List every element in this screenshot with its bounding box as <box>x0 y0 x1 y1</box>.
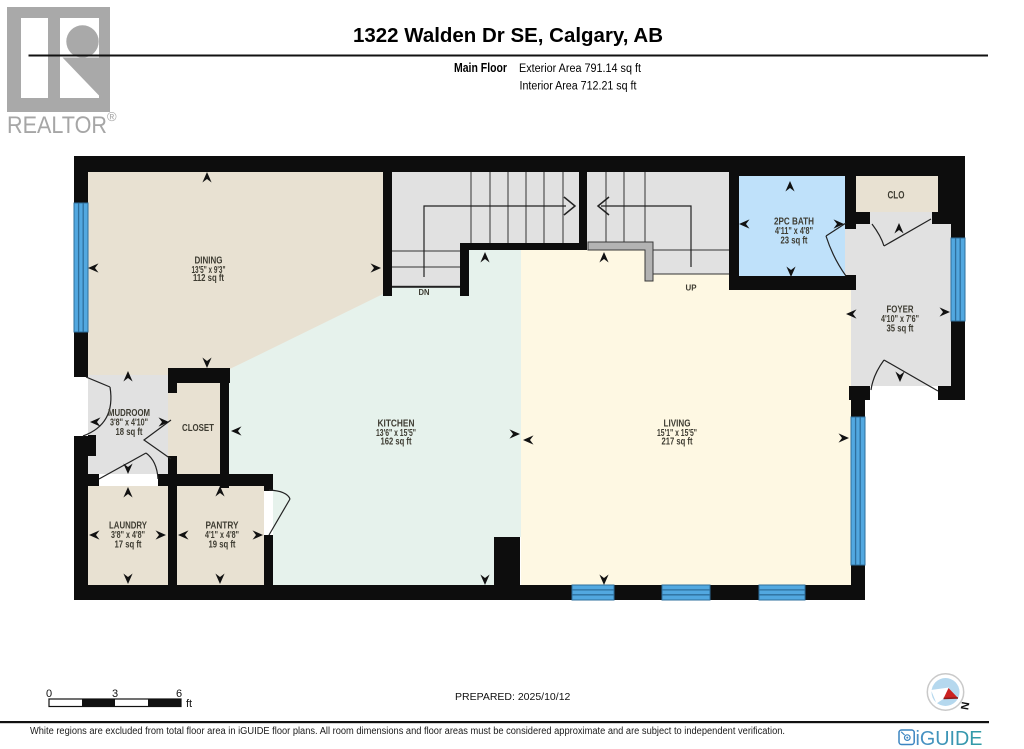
svg-text:1322 Walden Dr SE, Calgary, AB: 1322 Walden Dr SE, Calgary, AB <box>353 25 663 47</box>
svg-text:iGUIDE: iGUIDE <box>916 727 983 749</box>
svg-text:17 sq ft: 17 sq ft <box>115 540 143 551</box>
svg-text:3: 3 <box>112 688 118 700</box>
svg-text:DN: DN <box>419 287 430 297</box>
svg-text:23 sq ft: 23 sq ft <box>781 236 809 247</box>
svg-text:Main Floor: Main Floor <box>454 61 507 75</box>
svg-text:162 sq ft: 162 sq ft <box>381 437 413 448</box>
svg-text:CLOSET: CLOSET <box>182 423 214 434</box>
svg-text:19 sq ft: 19 sq ft <box>209 540 237 551</box>
svg-text:REALTOR: REALTOR <box>7 112 107 139</box>
svg-text:18 sq ft: 18 sq ft <box>116 427 144 438</box>
svg-text:6: 6 <box>176 688 182 700</box>
svg-text:UP: UP <box>686 283 697 293</box>
svg-text:112 sq ft: 112 sq ft <box>193 273 225 284</box>
svg-text:White regions are excluded fro: White regions are excluded from total fl… <box>30 726 785 737</box>
svg-text:®: ® <box>107 109 117 124</box>
svg-text:Interior Area 712.21 sq ft: Interior Area 712.21 sq ft <box>520 81 638 93</box>
svg-text:PREPARED: 2025/10/12: PREPARED: 2025/10/12 <box>455 691 571 703</box>
svg-text:CLO: CLO <box>888 190 905 202</box>
svg-text:ft: ft <box>186 698 192 710</box>
svg-text:35 sq ft: 35 sq ft <box>887 324 915 335</box>
svg-text:0: 0 <box>46 688 52 700</box>
svg-text:Exterior Area 791.14 sq ft: Exterior Area 791.14 sq ft <box>519 63 642 75</box>
svg-text:217 sq ft: 217 sq ft <box>662 437 694 448</box>
